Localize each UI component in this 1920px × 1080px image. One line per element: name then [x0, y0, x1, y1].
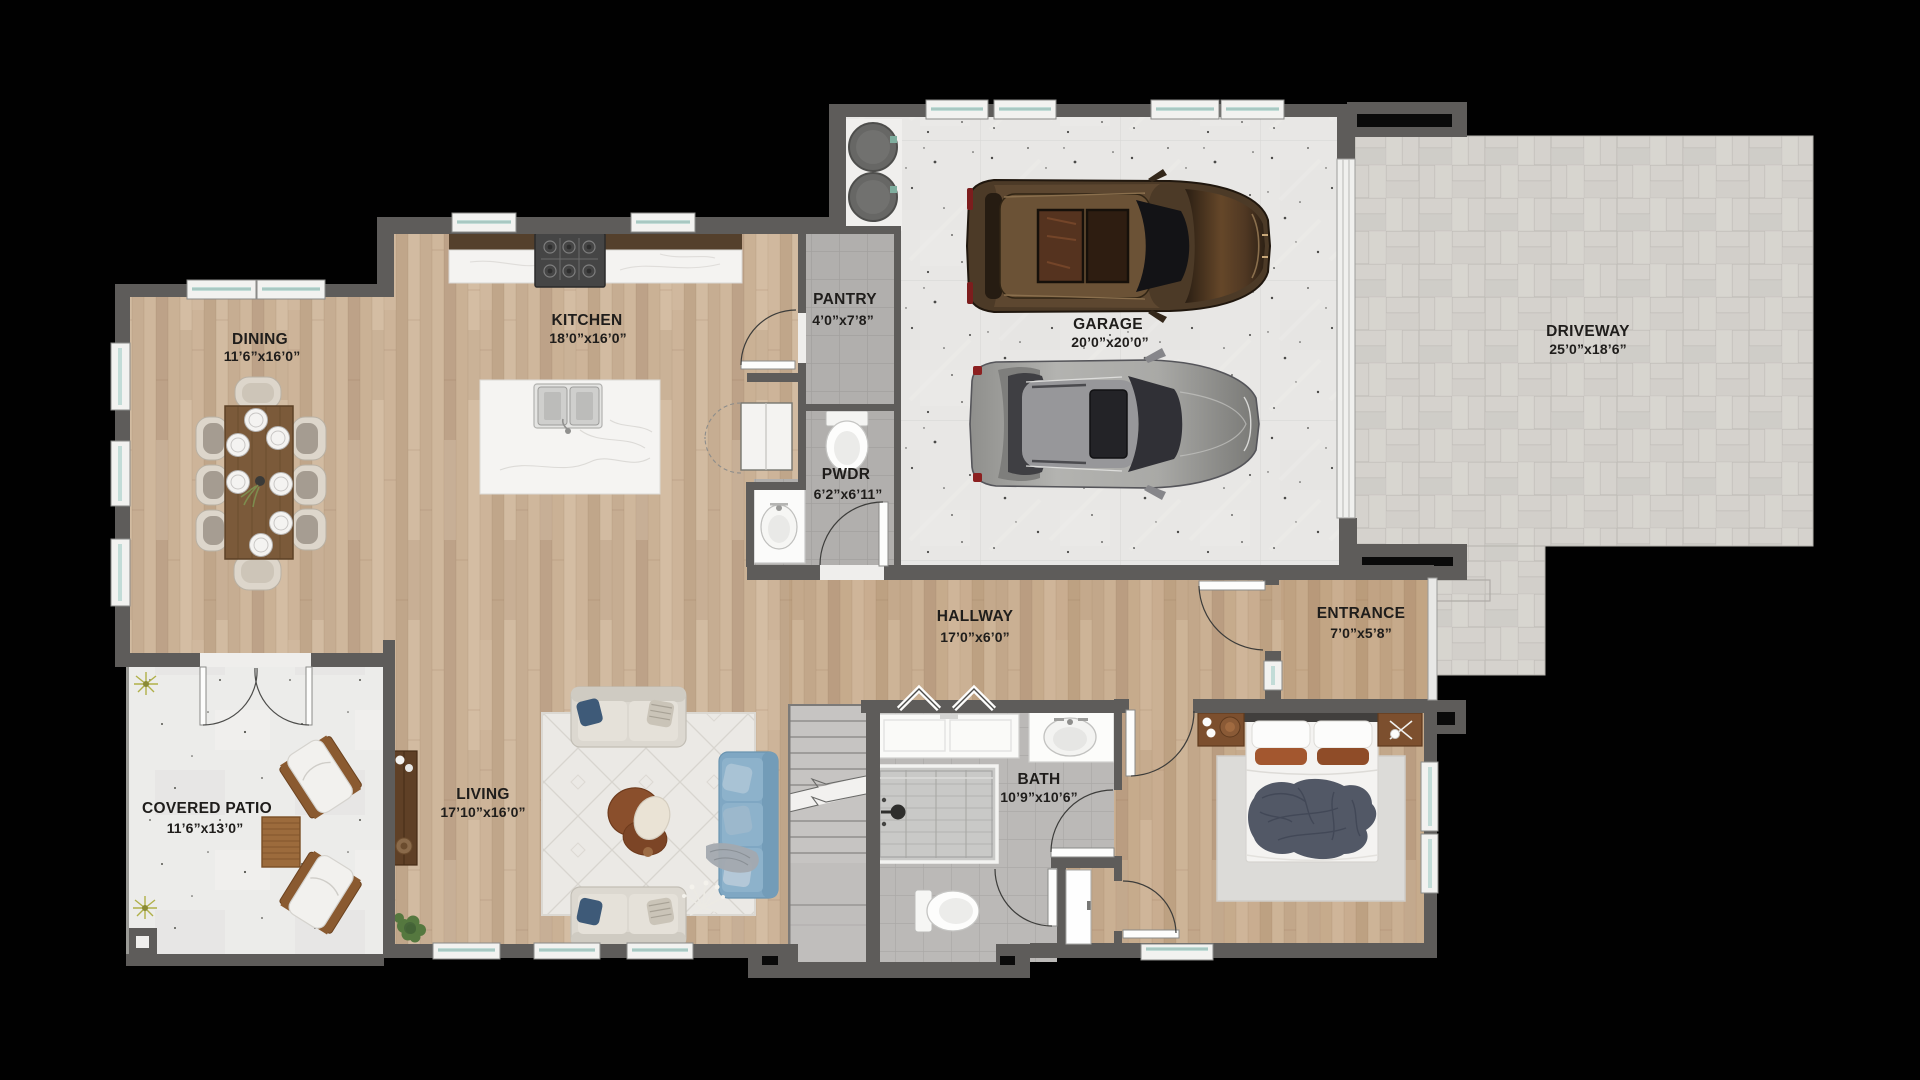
svg-text:17’0”x6’0”: 17’0”x6’0” — [940, 629, 1010, 645]
svg-text:11’6”x16’0”: 11’6”x16’0” — [224, 348, 301, 364]
svg-text:7’0”x5’8”: 7’0”x5’8” — [1330, 625, 1392, 641]
svg-text:LIVING: LIVING — [456, 786, 509, 803]
svg-text:PANTRY: PANTRY — [813, 291, 877, 308]
svg-text:20’0”x20’0”: 20’0”x20’0” — [1071, 334, 1148, 350]
svg-text:17’10”x16’0”: 17’10”x16’0” — [440, 804, 525, 820]
svg-text:11’6”x13’0”: 11’6”x13’0” — [167, 820, 244, 836]
svg-text:18’0”x16’0”: 18’0”x16’0” — [549, 330, 626, 346]
svg-text:DRIVEWAY: DRIVEWAY — [1546, 323, 1630, 340]
svg-text:10’9”x10’6”: 10’9”x10’6” — [1000, 789, 1077, 805]
svg-text:6’2”x6’11”: 6’2”x6’11” — [814, 486, 883, 502]
svg-text:HALLWAY: HALLWAY — [937, 608, 1014, 625]
svg-text:4’0”x7’8”: 4’0”x7’8” — [812, 312, 874, 328]
svg-text:BATH: BATH — [1017, 771, 1060, 788]
svg-text:GARAGE: GARAGE — [1073, 316, 1143, 333]
svg-text:DINING: DINING — [232, 331, 288, 348]
svg-text:COVERED PATIO: COVERED PATIO — [142, 800, 272, 817]
svg-text:PWDR: PWDR — [822, 466, 871, 483]
svg-text:KITCHEN: KITCHEN — [552, 312, 623, 329]
svg-text:25’0”x18’6”: 25’0”x18’6” — [1549, 341, 1626, 357]
svg-text:ENTRANCE: ENTRANCE — [1317, 605, 1406, 622]
